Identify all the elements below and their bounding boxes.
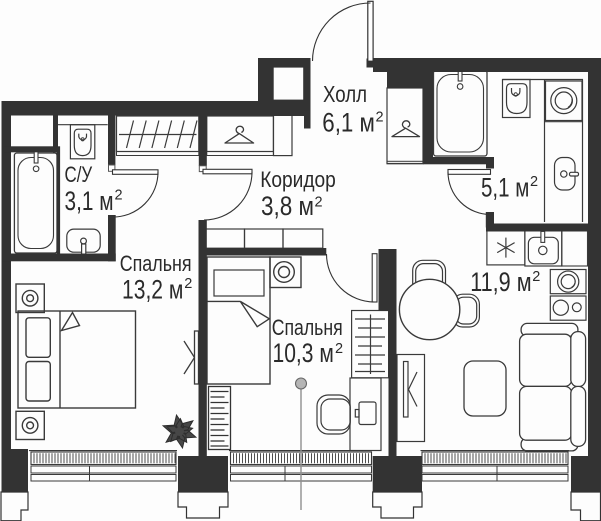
svg-text:С/У: С/У (65, 162, 93, 187)
svg-text:2: 2 (376, 110, 384, 126)
svg-text:3,8 м: 3,8 м (261, 191, 314, 221)
svg-text:2: 2 (335, 341, 343, 357)
svg-text:5,1 м: 5,1 м (481, 173, 529, 203)
svg-text:Коридор: Коридор (260, 167, 336, 192)
svg-text:Холл: Холл (323, 81, 367, 107)
svg-text:6,1 м: 6,1 м (322, 108, 375, 138)
svg-text:2: 2 (184, 276, 192, 292)
svg-text:3,1 м: 3,1 м (65, 186, 114, 216)
svg-text:10,3 м: 10,3 м (273, 338, 334, 368)
svg-text:2: 2 (315, 195, 323, 211)
svg-text:13,2 м: 13,2 м (122, 275, 183, 305)
svg-text:Спальня: Спальня (272, 315, 343, 340)
svg-text:Спальня: Спальня (120, 251, 192, 276)
svg-text:2: 2 (115, 188, 123, 204)
svg-text:2: 2 (530, 174, 538, 190)
svg-text:2: 2 (532, 269, 540, 285)
svg-text:11,9 м: 11,9 м (470, 267, 531, 297)
